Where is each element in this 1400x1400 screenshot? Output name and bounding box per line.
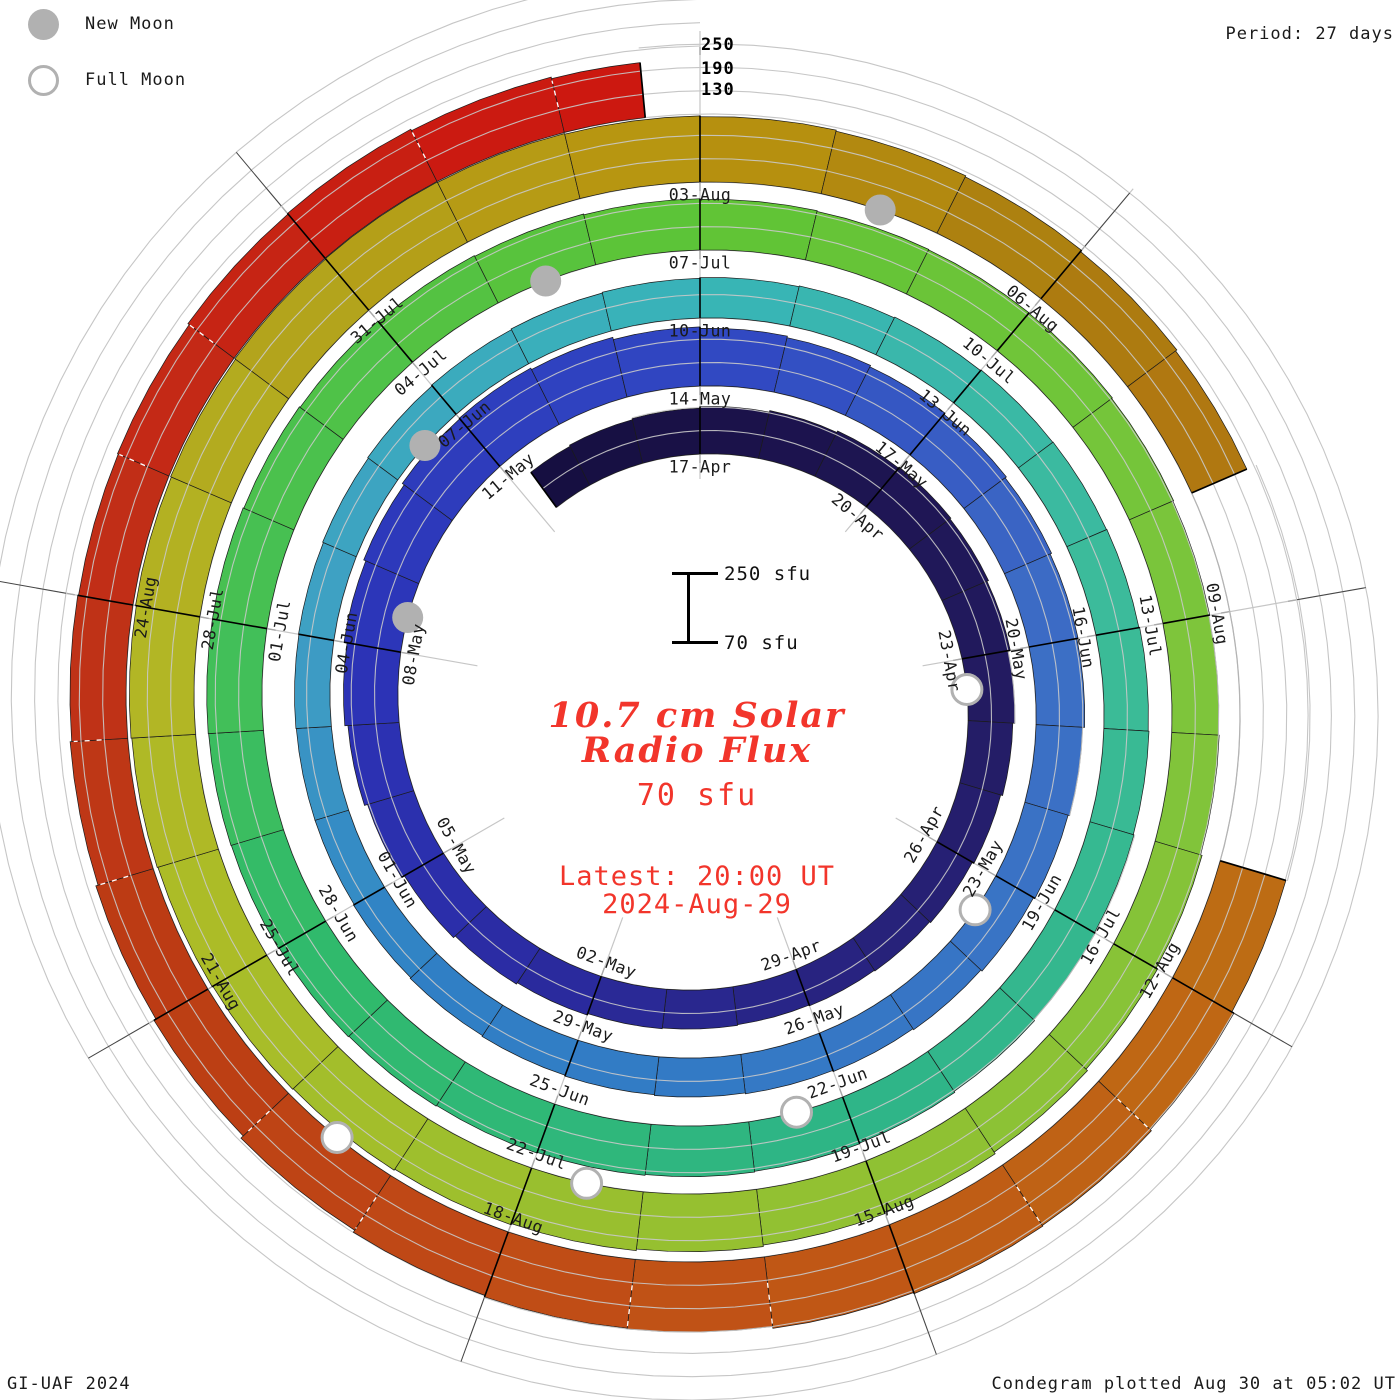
chart-title-line2: Radio Flux (582, 734, 812, 768)
latest-date-label: 2024-Aug-29 (602, 889, 792, 920)
date-label: 10-Jun (669, 322, 732, 341)
date-label: 03-Aug (669, 186, 732, 205)
current-flux-value: 70 sfu (637, 778, 757, 813)
chart-title-line1: 10.7 cm Solar (549, 699, 846, 733)
plotted-label: Condegram plotted Aug 30 at 05:02 UT (992, 1374, 1396, 1394)
new-moon-label: New Moon (85, 14, 175, 34)
full-moon-marker (782, 1097, 812, 1127)
scale-bar-line (687, 572, 690, 643)
full-moon-marker (322, 1123, 352, 1153)
legend-new-moon: New Moon (28, 7, 175, 41)
condegram-page: 17-Apr20-Apr23-Apr26-Apr29-Apr02-May05-M… (0, 0, 1400, 1400)
period-label: Period: 27 days (1225, 24, 1394, 44)
radial-axis-190: 190 (701, 59, 735, 79)
new-moon-marker (409, 430, 440, 461)
new-moon-marker (865, 195, 896, 226)
scale-bar-bottom-label: 70 sfu (724, 632, 799, 654)
full-moon-label: Full Moon (85, 70, 186, 90)
latest-time-label: Latest: 20:00 UT (559, 861, 835, 892)
legend-full-moon: Full Moon (28, 63, 186, 97)
scale-bar-top-cap (672, 572, 718, 575)
date-label: 17-Apr (669, 458, 732, 477)
credit-label: GI-UAF 2024 (7, 1374, 131, 1394)
scale-bar-top-label: 250 sfu (724, 563, 811, 585)
date-label: 07-Jul (669, 254, 732, 273)
new-moon-marker (530, 266, 561, 297)
full-moon-marker (572, 1168, 602, 1198)
new-moon-icon (28, 9, 59, 40)
radial-axis-130: 130 (701, 80, 735, 100)
full-moon-icon (28, 65, 59, 96)
scale-bar-bottom-cap (672, 641, 718, 644)
radial-axis-250: 250 (701, 35, 735, 55)
date-label: 14-May (669, 390, 732, 409)
